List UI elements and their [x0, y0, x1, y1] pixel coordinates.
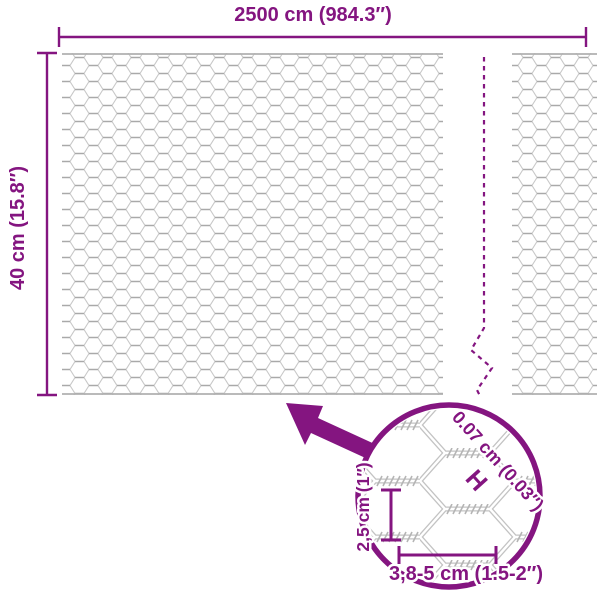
product-dimension-diagram: 2500 cm (984.3″) 40 cm (15.8″) 0.07 cm (…	[0, 0, 600, 600]
width-dimension: 2500 cm (984.3″)	[59, 4, 586, 47]
mesh-panel	[62, 53, 443, 395]
cell-width-label: 3,8-5 cm (1.5-2″)	[389, 563, 543, 585]
detail-circle: 0.07 cm (0.03″) H 2,5 cm (1″) 3,8-5 cm (…	[350, 397, 550, 597]
zoom-arrow-icon	[286, 403, 379, 461]
height-dimension: 40 cm (15.8″)	[7, 53, 57, 395]
mesh-strip	[512, 53, 597, 395]
mesh-panel-texture	[62, 53, 443, 395]
length-break-line	[471, 57, 492, 398]
diagram-canvas: 2500 cm (984.3″) 40 cm (15.8″) 0.07 cm (…	[0, 0, 600, 600]
width-dimension-label: 2500 cm (984.3″)	[234, 4, 391, 26]
height-dimension-label: 40 cm (15.8″)	[7, 166, 29, 290]
cell-height-label: 2,5 cm (1″)	[353, 462, 373, 551]
mesh-strip-texture	[512, 53, 597, 395]
